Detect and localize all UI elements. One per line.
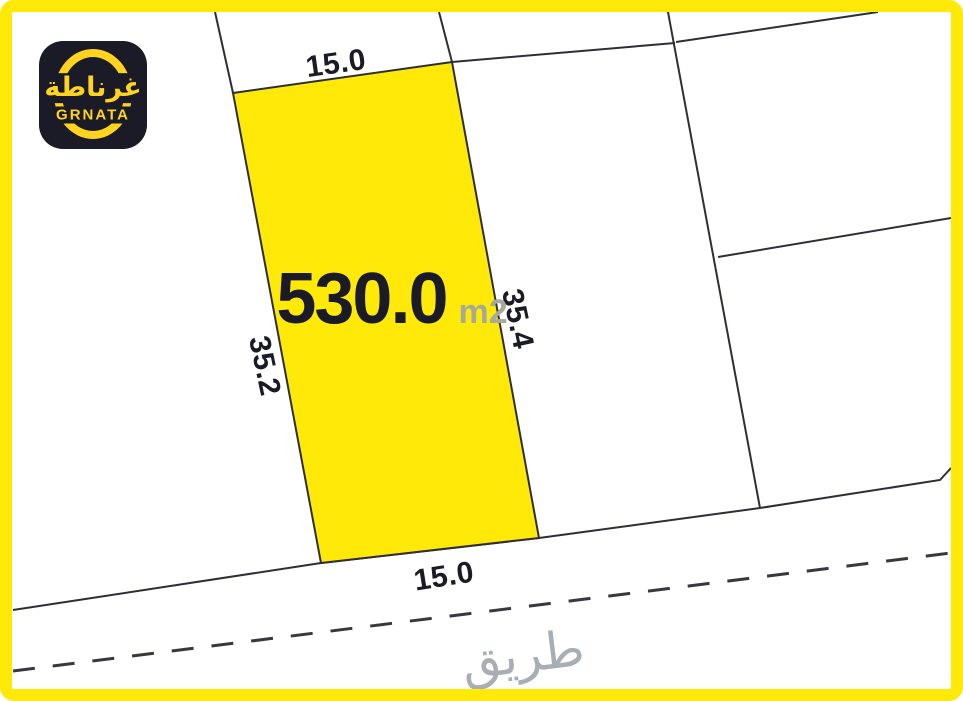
right-parcel-divider-line	[718, 218, 951, 257]
area-unit-label: m2	[459, 295, 508, 329]
area-value: 530.0	[276, 263, 446, 335]
plot-map-flyer: 15.0 35.2 35.4 15.0 530.0 m2 طريق غرناطة…	[0, 0, 963, 701]
neighbor-top-boundary-line	[452, 43, 675, 62]
neighbor-right-boundary-line	[668, 12, 760, 508]
top-right-parcel-line	[676, 12, 878, 42]
plot-left-edge-extension-line	[215, 12, 233, 93]
plot-right-edge-extension-line	[439, 12, 452, 62]
grnata-logo: غرناطة GRNATA	[39, 41, 147, 149]
logo-latin-text: GRNATA	[54, 107, 132, 124]
plot-area-label: 530.0 m2	[276, 263, 507, 335]
logo-arabic-text: غرناطة	[41, 73, 144, 103]
